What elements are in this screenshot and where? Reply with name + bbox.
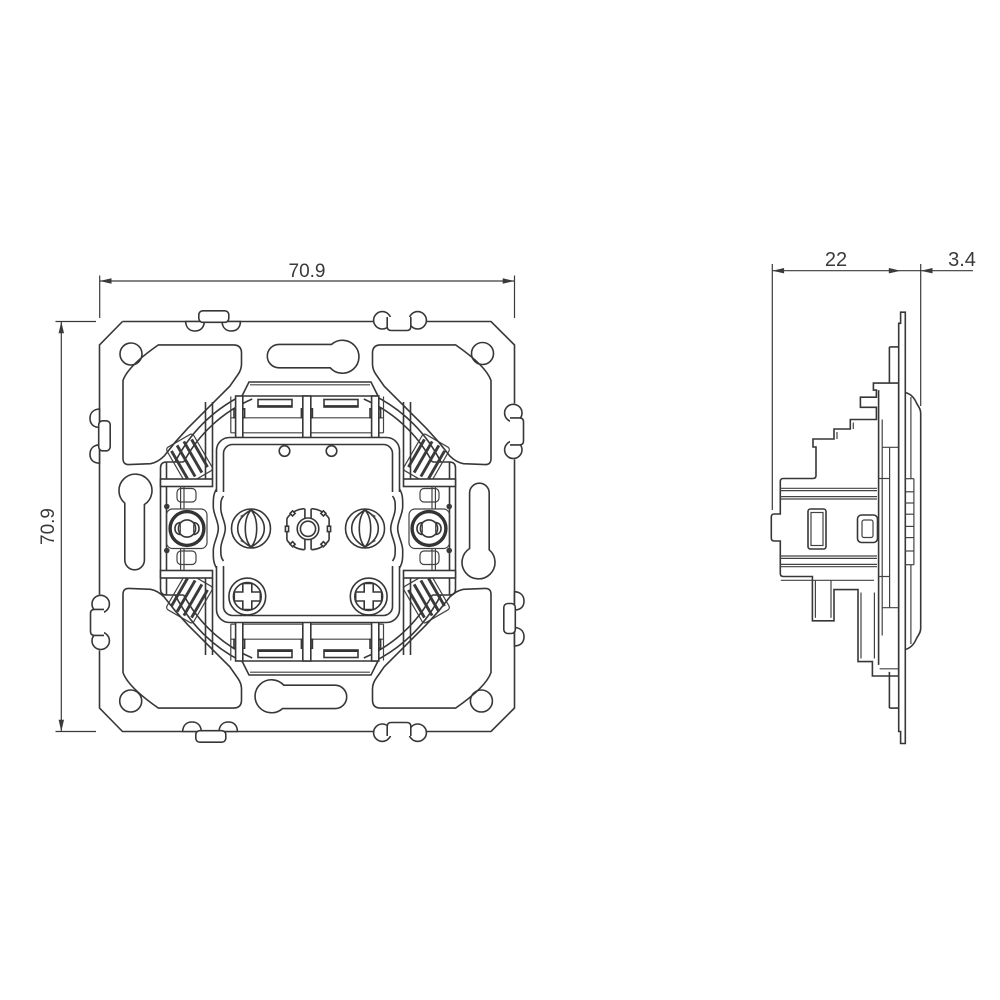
svg-text:70.9: 70.9 bbox=[289, 261, 326, 282]
svg-text:3.4: 3.4 bbox=[948, 249, 976, 271]
svg-text:70.9: 70.9 bbox=[38, 508, 59, 545]
svg-text:22: 22 bbox=[825, 249, 847, 271]
